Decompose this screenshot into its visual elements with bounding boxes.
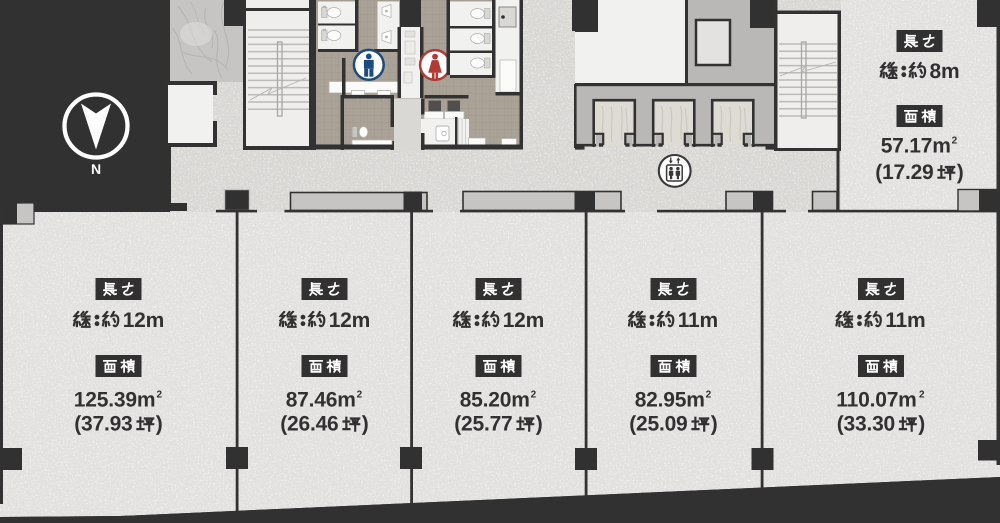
svg-text:(25.09: (25.09 <box>629 413 687 436</box>
svg-text:2: 2 <box>706 390 712 401</box>
svg-text:(26.46: (26.46 <box>280 413 338 436</box>
svg-text:): ) <box>536 413 543 436</box>
svg-text:12m: 12m <box>329 309 370 332</box>
svg-text:(37.93: (37.93 <box>74 413 132 436</box>
svg-text:(33.30: (33.30 <box>837 413 895 436</box>
svg-text:(17.29: (17.29 <box>875 161 933 184</box>
svg-text:82.95m: 82.95m <box>635 388 705 411</box>
svg-text:2: 2 <box>919 390 925 401</box>
svg-text:2: 2 <box>157 390 163 401</box>
svg-text:12m: 12m <box>123 309 164 332</box>
svg-text:125.39m: 125.39m <box>74 388 156 411</box>
svg-text:11m: 11m <box>678 309 718 332</box>
svg-text:85.20m: 85.20m <box>460 388 530 411</box>
svg-text:): ) <box>957 161 964 184</box>
svg-text:(25.77: (25.77 <box>454 413 512 436</box>
svg-text:): ) <box>362 413 369 436</box>
svg-text:N: N <box>91 161 101 177</box>
svg-text:): ) <box>711 413 718 436</box>
svg-text:2: 2 <box>952 136 958 147</box>
svg-text:87.46m: 87.46m <box>286 388 356 411</box>
svg-text:57.17m: 57.17m <box>881 134 951 157</box>
svg-text:12m: 12m <box>503 309 544 332</box>
svg-text:2: 2 <box>357 390 363 401</box>
svg-text:8m: 8m <box>930 60 960 83</box>
svg-text:): ) <box>156 413 163 436</box>
svg-text:110.07m: 110.07m <box>836 388 916 411</box>
svg-text:11m: 11m <box>885 309 925 332</box>
svg-text:2: 2 <box>531 390 537 401</box>
svg-text:): ) <box>918 413 925 436</box>
